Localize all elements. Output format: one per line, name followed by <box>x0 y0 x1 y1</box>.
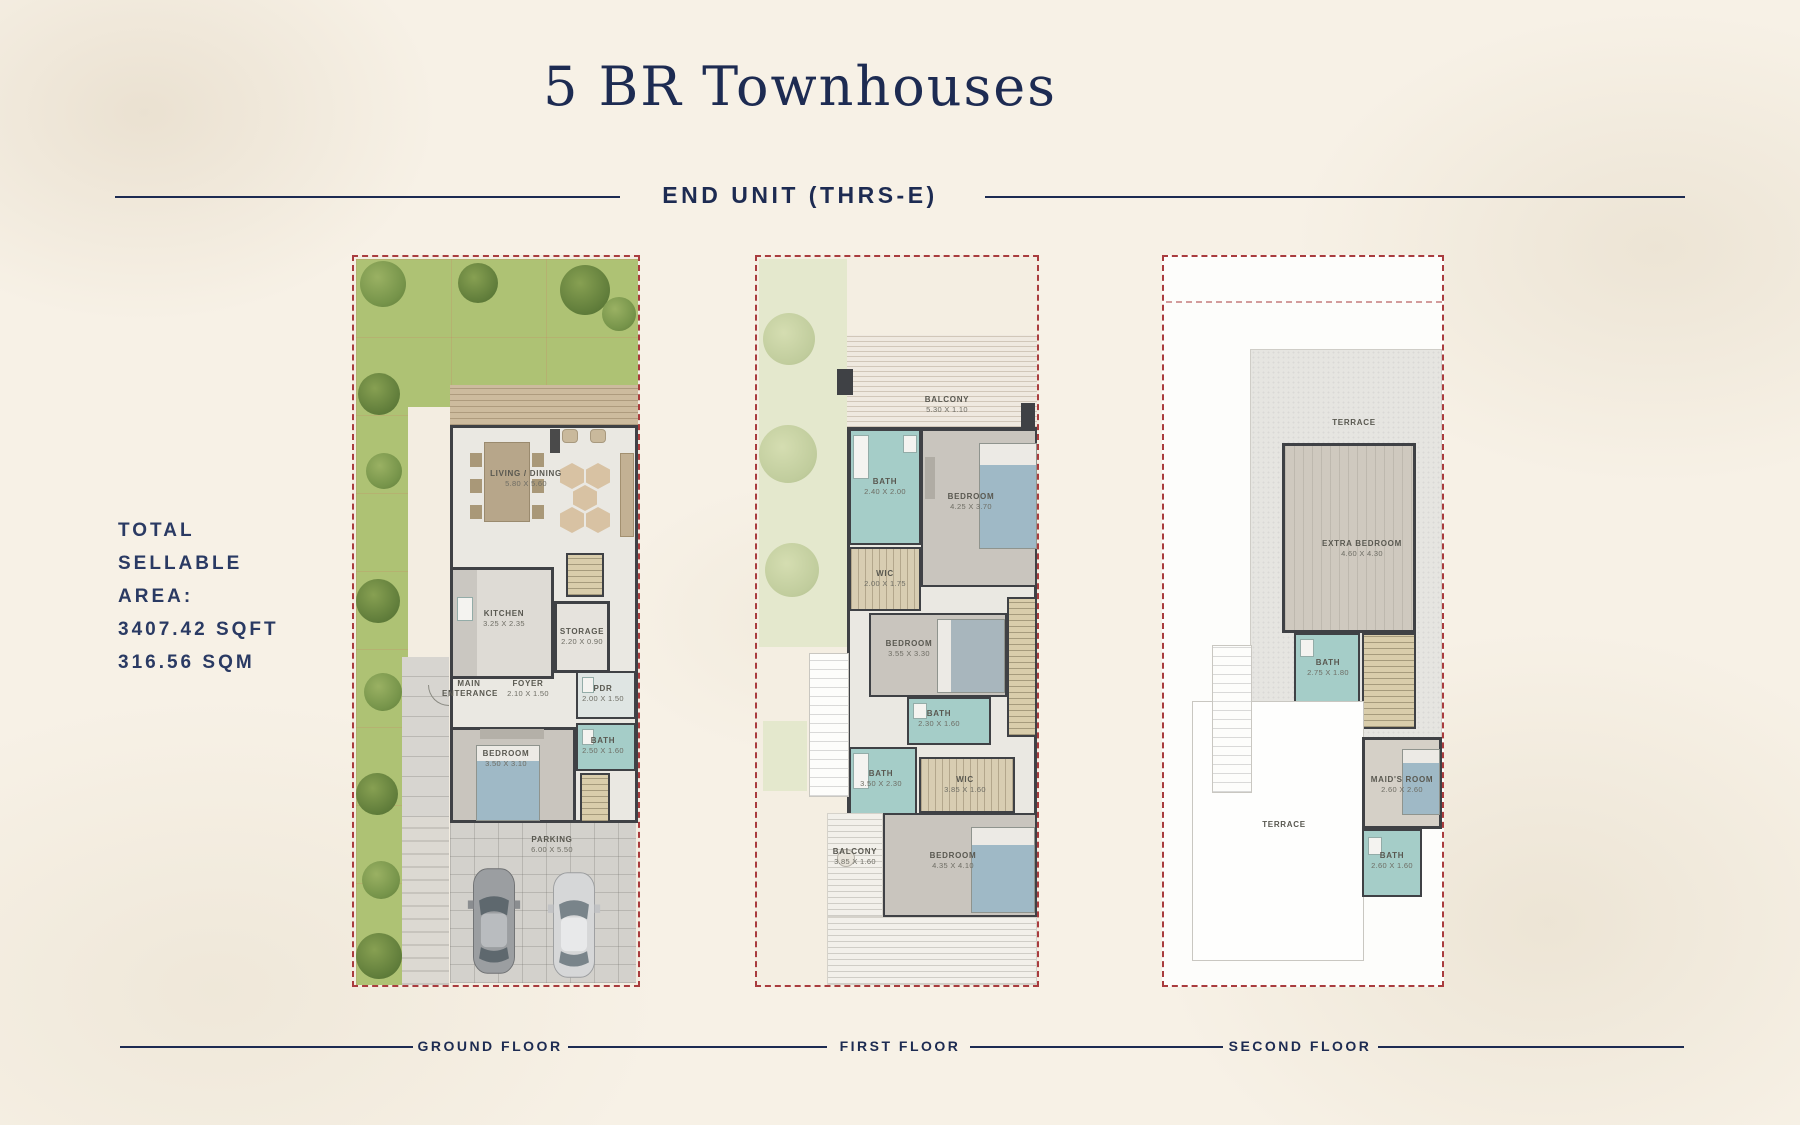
tree <box>356 773 398 815</box>
tv-unit <box>550 429 560 453</box>
room-name: BATH <box>1316 658 1340 667</box>
staircase <box>1007 597 1037 737</box>
room-name: BALCONY <box>833 847 877 856</box>
room-dims: 5.80 X 5.60 <box>490 479 562 489</box>
staircase-lower <box>580 773 610 823</box>
tree <box>356 933 402 979</box>
room-label-bath3: BATH 3.50 X 2.30 <box>860 769 902 789</box>
room-label-foyer: FOYER 2.10 X 1.50 <box>507 679 549 699</box>
room-label-bath-s2: BATH 2.60 X 1.60 <box>1371 851 1413 871</box>
room-name: BATH <box>591 736 615 745</box>
room-dims: 3.50 X 3.10 <box>483 759 530 769</box>
deck-bottom <box>827 917 1037 985</box>
room-name: MAID'S ROOM <box>1371 775 1434 784</box>
room-label-pdr: PDR 2.00 X 1.50 <box>582 684 624 704</box>
room-name: FOYER <box>512 679 543 688</box>
kitchen-sink <box>457 597 473 621</box>
tree <box>458 263 498 303</box>
room-name: BATH <box>1380 851 1404 860</box>
footer-rule-2 <box>568 1046 827 1048</box>
room-name: STORAGE <box>560 627 604 636</box>
room-label-entrance: MAIN ENTERANCE <box>442 679 496 699</box>
armchair <box>562 429 578 443</box>
room-name: TERRACE <box>1332 418 1376 427</box>
room-name: TERRACE <box>1262 820 1306 829</box>
room-label-bath2: BATH 2.30 X 1.60 <box>918 709 960 729</box>
room-label-terrace1: TERRACE <box>1332 418 1376 428</box>
staircase <box>1362 633 1416 729</box>
tree-faded <box>763 313 815 365</box>
area-line-4: 3407.42 SQFT <box>118 613 279 646</box>
staircase-upper <box>566 553 604 597</box>
room-label-bedroom-ground: BEDROOM 3.50 X 3.10 <box>483 749 530 769</box>
room-dims: 2.75 X 1.80 <box>1307 668 1349 678</box>
room-label-balcony2: BALCONY 3.85 X 1.60 <box>833 847 877 867</box>
rear-deck <box>450 385 638 425</box>
room-dims: 6.00 X 5.50 <box>531 845 573 855</box>
toilet <box>903 435 917 453</box>
area-line-2: SELLABLE <box>118 547 279 580</box>
sofa <box>620 453 634 537</box>
room-name: BEDROOM <box>948 492 995 501</box>
tree-faded <box>759 425 817 483</box>
area-line-3: AREA: <box>118 580 279 613</box>
room-label-bedroom3: BEDROOM 4.35 X 4.10 <box>930 851 977 871</box>
room-label-bath-ground: BATH 2.50 X 1.60 <box>582 736 624 756</box>
room-label-kitchen: KITCHEN 3.25 X 2.35 <box>483 609 525 629</box>
room-label-maid: MAID'S ROOM 2.60 X 2.60 <box>1371 775 1434 795</box>
second-floor-label: SECOND FLOOR <box>1229 1038 1372 1054</box>
wardrobe <box>480 729 544 739</box>
room-name: BEDROOM <box>483 749 530 758</box>
tree <box>602 297 636 331</box>
room-name: BATH <box>873 477 897 486</box>
room-dims: 3.25 X 2.35 <box>483 619 525 629</box>
stair-void <box>809 653 849 797</box>
first-floor-label: FIRST FLOOR <box>840 1038 961 1054</box>
footer-rule-1 <box>120 1046 413 1048</box>
second-floor-plan: TERRACE EXTRA BEDROOM 4.60 X 4.30 BATH 2… <box>1162 255 1444 987</box>
area-line-5: 316.56 SQM <box>118 646 279 679</box>
room-dims: 2.50 X 1.60 <box>582 746 624 756</box>
sellable-area-block: TOTAL SELLABLE AREA: 3407.42 SQFT 316.56… <box>118 514 279 679</box>
room-extra-bedroom <box>1282 443 1416 633</box>
room-dims: 2.00 X 1.75 <box>864 579 906 589</box>
wall-block <box>837 369 853 395</box>
room-dims: 4.60 X 4.30 <box>1322 549 1402 559</box>
room-dims: 3.85 X 1.60 <box>944 785 986 795</box>
room-name: BEDROOM <box>930 851 977 860</box>
bathtub <box>853 435 869 479</box>
room-name: BALCONY <box>925 395 969 404</box>
room-label-wic2: WIC 3.85 X 1.60 <box>944 775 986 795</box>
wall-block <box>1021 403 1035 427</box>
page-title: 5 BR Townhouses <box>543 55 1057 118</box>
room-dims: 4.25 X 3.70 <box>948 502 995 512</box>
room-dims: 5.30 X 1.10 <box>925 405 969 415</box>
room-label-living: LIVING / DINING 5.80 X 5.60 <box>490 469 562 489</box>
unit-subtitle: END UNIT (THRS-E) <box>662 182 937 209</box>
room-label-wic1: WIC 2.00 X 1.75 <box>864 569 906 589</box>
first-floor-plan: BALCONY 5.30 X 1.10 BATH 2.40 X 2.00 BED… <box>755 255 1039 987</box>
kitchen-counter <box>453 570 477 676</box>
bed <box>971 827 1035 913</box>
room-label-terrace2: TERRACE <box>1262 820 1306 830</box>
room-dims: 2.30 X 1.60 <box>918 719 960 729</box>
tree-faded <box>765 543 819 597</box>
room-dims: 3.50 X 2.30 <box>860 779 902 789</box>
ground-floor-label: GROUND FLOOR <box>417 1038 562 1054</box>
side-steps <box>402 817 449 985</box>
tree <box>358 373 400 415</box>
footer-rule-3 <box>970 1046 1223 1048</box>
room-name: BATH <box>869 769 893 778</box>
room-name: KITCHEN <box>484 609 524 618</box>
room-name: EXTRA BEDROOM <box>1322 539 1402 548</box>
room-label-bedroom2: BEDROOM 3.55 X 3.30 <box>886 639 933 659</box>
room-label-parking: PARKING 6.00 X 5.50 <box>531 835 573 855</box>
dining-chairs-left <box>470 447 482 519</box>
car-light <box>546 869 602 981</box>
room-dims: 4.35 X 4.10 <box>930 861 977 871</box>
dresser <box>925 457 935 499</box>
roofline-dashed <box>1166 301 1442 303</box>
room-label-storage: STORAGE 2.20 X 0.90 <box>560 627 604 647</box>
tree <box>362 861 400 899</box>
tree <box>364 673 402 711</box>
room-name: BATH <box>927 709 951 718</box>
footer-rule-4 <box>1378 1046 1684 1048</box>
stair-outline <box>1212 645 1252 793</box>
room-dims: 2.40 X 2.00 <box>864 487 906 497</box>
room-label-bath1: BATH 2.40 X 2.00 <box>864 477 906 497</box>
armchair <box>590 429 606 443</box>
ground-floor-plan: LIVING / DINING 5.80 X 5.60 KITCHEN 3.25… <box>352 255 640 987</box>
tree <box>366 453 402 489</box>
area-line-1: TOTAL <box>118 514 279 547</box>
room-name: WIC <box>876 569 894 578</box>
room-dims: 2.10 X 1.50 <box>507 689 549 699</box>
room-label-extra-bedroom: EXTRA BEDROOM 4.60 X 4.30 <box>1322 539 1402 559</box>
room-dims: 3.85 X 1.60 <box>833 857 877 867</box>
bed <box>937 619 1005 693</box>
header-rule-right <box>985 196 1685 198</box>
room-dims: 2.60 X 2.60 <box>1371 785 1434 795</box>
brochure-page: 5 BR Townhouses END UNIT (THRS-E) TOTAL … <box>0 0 1800 1125</box>
room-label-bedroom1: BEDROOM 4.25 X 3.70 <box>948 492 995 512</box>
toilet <box>1300 639 1314 657</box>
room-name: WIC <box>956 775 974 784</box>
room-label-bath-s1: BATH 2.75 X 1.80 <box>1307 658 1349 678</box>
tree <box>360 261 406 307</box>
room-dims: 3.55 X 3.30 <box>886 649 933 659</box>
room-name: PDR <box>593 684 612 693</box>
garden-patch <box>763 721 807 791</box>
tree <box>356 579 400 623</box>
room-dims: 2.60 X 1.60 <box>1371 861 1413 871</box>
room-name: BEDROOM <box>886 639 933 648</box>
car-dark <box>466 863 522 979</box>
room-name: LIVING / DINING <box>490 469 562 478</box>
room-dims: 2.20 X 0.90 <box>560 637 604 647</box>
header-rule-left <box>115 196 620 198</box>
room-label-balcony1: BALCONY 5.30 X 1.10 <box>925 395 969 415</box>
room-dims: 2.00 X 1.50 <box>582 694 624 704</box>
room-name: MAIN ENTERANCE <box>442 679 498 698</box>
room-name: PARKING <box>531 835 572 844</box>
